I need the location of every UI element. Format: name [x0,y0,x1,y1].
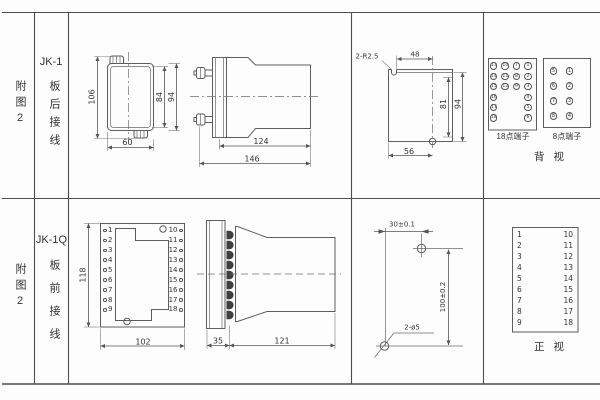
rear18-terminal-2: 2 [524,73,531,80]
rear8-terminal-8: 8 [550,112,558,120]
rear8-terminal-7: 7 [550,97,558,105]
table-terminal-5: 5 [517,274,531,284]
table-terminal-18: 18 [553,318,573,328]
panel-terminal-4: 4 [108,256,120,265]
panel-terminal-9: 9 [108,305,120,314]
table-terminal-11: 11 [553,241,573,251]
terminal-numbers-layer: 1310711411821512931641751865162738412345… [0,0,600,400]
table-terminal-17: 17 [553,307,573,317]
rear18-terminal-10: 10 [501,62,508,69]
table-terminal-13: 13 [553,263,573,273]
table-terminal-12: 12 [553,252,573,262]
panel-terminal-3: 3 [108,246,120,255]
drawing-sheet: 106 84 94 60 124 146 [0,0,600,400]
table-terminal-1: 1 [517,230,531,240]
rear18-terminal-15: 15 [490,83,497,90]
rear8-terminal-4: 4 [566,112,574,120]
panel-dot-11 [179,239,183,243]
panel-dot-5 [103,268,107,272]
table-terminal-7: 7 [517,296,531,306]
panel-dot-16 [179,288,183,292]
rear18-terminal-6: 6 [524,114,531,121]
table-terminal-9: 9 [517,318,531,328]
table-terminal-8: 8 [517,307,531,317]
rear18-terminal-1: 1 [524,62,531,69]
panel-terminal-17: 17 [166,296,178,305]
rear8-terminal-3: 3 [566,97,574,105]
panel-dot-6 [103,278,107,282]
table-terminal-15: 15 [553,285,573,295]
panel-dot-13 [179,258,183,262]
panel-dot-12 [179,249,183,253]
panel-dot-2 [103,239,107,243]
rear18-terminal-8: 8 [513,73,520,80]
rear18-terminal-3: 3 [524,83,531,90]
rear8-terminal-2: 2 [566,82,574,90]
panel-terminal-10: 10 [166,226,178,235]
panel-dot-3 [103,249,107,253]
table-terminal-2: 2 [517,241,531,251]
rear8-terminal-1: 1 [566,67,574,75]
panel-terminal-13: 13 [166,256,178,265]
rear18-terminal-14: 14 [490,73,497,80]
rear18-terminal-7: 7 [513,62,520,69]
rear18-terminal-16: 16 [490,94,497,101]
table-terminal-10: 10 [553,230,573,240]
panel-dot-17 [179,298,183,302]
rear18-terminal-11: 11 [501,73,508,80]
panel-terminal-15: 15 [166,276,178,285]
panel-terminal-12: 12 [166,246,178,255]
panel-terminal-7: 7 [108,286,120,295]
rear18-terminal-5: 5 [524,104,531,111]
panel-terminal-8: 8 [108,296,120,305]
table-terminal-16: 16 [553,296,573,306]
panel-terminal-18: 18 [166,305,178,314]
rear18-terminal-13: 13 [490,62,497,69]
panel-terminal-5: 5 [108,266,120,275]
table-terminal-14: 14 [553,274,573,284]
rear18-terminal-9: 9 [513,83,520,90]
panel-dot-1 [103,229,107,233]
panel-terminal-14: 14 [166,266,178,275]
panel-dot-8 [103,298,107,302]
rear8-terminal-6: 6 [550,82,558,90]
panel-terminal-2: 2 [108,236,120,245]
rear18-terminal-12: 12 [501,83,508,90]
table-terminal-3: 3 [517,252,531,262]
panel-dot-15 [179,278,183,282]
panel-terminal-6: 6 [108,276,120,285]
panel-dot-9 [103,308,107,312]
panel-dot-18 [179,308,183,312]
panel-terminal-16: 16 [166,286,178,295]
table-terminal-4: 4 [517,263,531,273]
panel-terminal-11: 11 [166,236,178,245]
panel-terminal-1: 1 [108,226,120,235]
rear18-terminal-17: 17 [490,104,497,111]
rear18-terminal-4: 4 [524,94,531,101]
panel-dot-7 [103,288,107,292]
rear8-terminal-5: 5 [550,67,558,75]
rear18-terminal-18: 18 [490,114,497,121]
panel-dot-10 [179,229,183,233]
panel-dot-4 [103,258,107,262]
panel-dot-14 [179,268,183,272]
table-terminal-6: 6 [517,285,531,295]
